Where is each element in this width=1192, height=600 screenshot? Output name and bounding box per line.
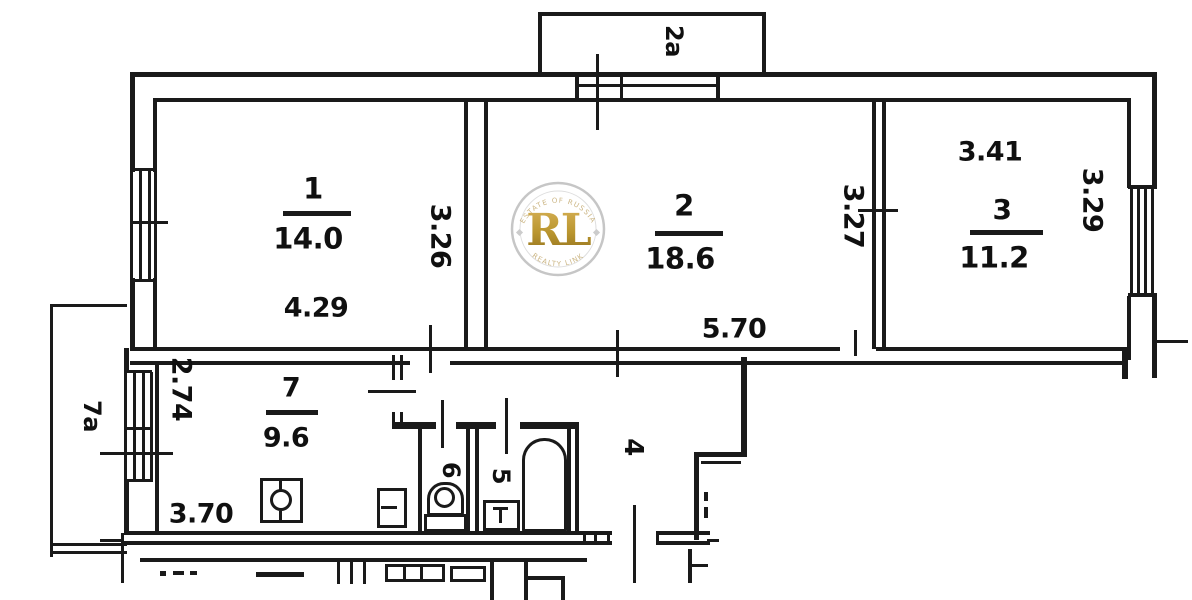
wall: [392, 422, 436, 429]
window-room7: [142, 372, 145, 482]
dim-room3-width: 3.41: [958, 139, 1023, 166]
balcony-2a-wall: [538, 12, 542, 74]
balcony-7a-wall: [50, 304, 127, 307]
stairwell-window: [450, 566, 486, 582]
wall: [400, 355, 403, 380]
stove-icon: [270, 489, 292, 511]
window-balcony-door: [575, 72, 579, 102]
window-room1: [154, 168, 157, 282]
door-tick: [616, 330, 619, 377]
bathroom-5-label: 5: [489, 468, 513, 484]
door-tick: [441, 400, 444, 448]
wall: [153, 98, 157, 172]
dim-room1-height: 3.26: [427, 204, 454, 269]
wall: [594, 531, 597, 545]
dashed-line: [256, 572, 304, 577]
toilet-6-label: 6: [439, 462, 463, 478]
wall: [130, 72, 1157, 77]
window-room7: [124, 427, 152, 430]
room-7-area: 9.6: [263, 425, 309, 452]
window-room1: [130, 168, 157, 171]
floor-plan: 1 14.0 2 18.6 3 11.2 7 9.6 2a 7a 4 5 6 4…: [0, 0, 1192, 600]
wall: [450, 361, 1128, 365]
window-room1: [130, 279, 157, 282]
bathtub-icon: [522, 438, 567, 532]
room-1-number: 1: [303, 175, 323, 204]
wall: [567, 422, 571, 532]
faucet-icon: [499, 509, 502, 523]
stairwell-wall: [121, 533, 124, 583]
window-room7: [124, 479, 152, 482]
stairwell-wall: [337, 562, 340, 584]
window-room1: [148, 168, 151, 282]
wall: [130, 347, 840, 351]
dashed-line: [160, 571, 166, 576]
stairwell-wall: [350, 562, 353, 584]
wall: [156, 98, 1127, 102]
door-tick: [633, 505, 636, 583]
wall: [694, 452, 699, 540]
wall: [1127, 98, 1131, 188]
dim-room7-height: 2.74: [168, 357, 195, 422]
wall: [124, 348, 129, 372]
dashed-line: [190, 571, 197, 575]
window-room3: [1151, 188, 1154, 294]
window-room3: [1137, 188, 1140, 294]
wall: [475, 424, 479, 532]
room-1-area: 14.0: [273, 225, 343, 254]
balcony-2a-wall: [538, 12, 766, 16]
wall: [130, 72, 135, 172]
wall: [575, 422, 579, 532]
stairwell-wall: [420, 564, 423, 582]
room-2-area: 18.6: [645, 245, 715, 274]
room-label-divider: [970, 230, 1043, 235]
wall: [701, 461, 741, 464]
wall: [153, 278, 157, 348]
wall: [418, 429, 422, 532]
balcony-7a-wall: [50, 543, 127, 546]
wall: [707, 539, 719, 542]
stairwell-wall: [692, 564, 708, 567]
door-hinge-mark: [704, 492, 708, 501]
window-balcony-door: [620, 72, 623, 102]
toilet-icon: [424, 514, 467, 532]
window-room7: [133, 372, 136, 482]
door-tick: [505, 398, 508, 454]
window-room3: [1130, 188, 1133, 294]
window-room3: [1144, 188, 1147, 294]
room-3-area: 11.2: [959, 244, 1029, 273]
dashed-line: [173, 571, 184, 575]
wall: [876, 347, 1128, 351]
room-7-number: 7: [282, 375, 300, 402]
wall: [872, 100, 876, 349]
balcony-7a-wall: [50, 551, 127, 554]
wall: [464, 98, 468, 349]
door-tick: [596, 54, 599, 130]
door-tick: [368, 390, 416, 393]
stairwell-wall: [403, 564, 406, 582]
faucet-icon: [493, 507, 508, 510]
wall: [124, 482, 129, 533]
stairwell-wall: [490, 560, 494, 600]
stairwell-wall: [100, 539, 121, 542]
stairwell-wall: [363, 562, 366, 584]
balcony-7a-wall: [50, 304, 53, 557]
door-tick: [429, 325, 432, 373]
balcony-2a-wall: [762, 12, 766, 74]
balcony-2a-label: 2a: [662, 25, 686, 57]
watermark-logo: ESTATE OF RUSSIA REALTY LINK RL: [508, 179, 608, 279]
window-room7: [124, 370, 152, 373]
dim-room1-width: 4.29: [284, 295, 349, 322]
wall: [1122, 347, 1128, 379]
room-3-number: 3: [993, 196, 1012, 224]
toilet-icon: [434, 487, 455, 508]
stairwell-wall: [524, 560, 528, 600]
dim-room3-height: 3.29: [1079, 168, 1106, 233]
dim-room7-width: 3.70: [169, 501, 234, 528]
room-label-divider: [283, 211, 351, 216]
wall: [656, 531, 659, 545]
wall: [1152, 72, 1157, 188]
balcony-7a-label: 7a: [80, 400, 104, 432]
hallway-4-label: 4: [620, 438, 646, 456]
wall: [583, 531, 586, 545]
wall: [694, 452, 747, 457]
window-room1: [139, 168, 142, 282]
wall: [741, 357, 747, 457]
wall: [1152, 296, 1157, 378]
kitchen-sink-icon: [381, 506, 397, 509]
wall: [392, 355, 395, 380]
dim-room2-width: 5.70: [702, 316, 767, 343]
room-label-divider: [655, 231, 723, 236]
room-label-divider: [266, 410, 318, 415]
wall: [155, 363, 159, 533]
window-room7: [124, 372, 127, 482]
stairwell-wall: [561, 576, 565, 600]
window-room7: [150, 372, 153, 482]
dimension-tick: [100, 452, 173, 455]
stairwell-window: [385, 564, 445, 582]
stairwell-wall: [527, 576, 565, 580]
wall: [484, 98, 488, 349]
wall: [882, 100, 886, 349]
door-tick: [854, 330, 857, 356]
dimension-tick: [1157, 340, 1188, 343]
stove-icon: [279, 511, 282, 521]
window-room1: [130, 168, 133, 282]
door-hinge-mark: [704, 507, 708, 518]
dim-room2-height: 3.27: [840, 184, 867, 249]
watermark-monogram: RL: [526, 205, 591, 256]
room-2-number: 2: [674, 192, 694, 221]
wall: [607, 531, 610, 545]
window-balcony-door: [716, 72, 720, 102]
wall: [130, 278, 135, 350]
